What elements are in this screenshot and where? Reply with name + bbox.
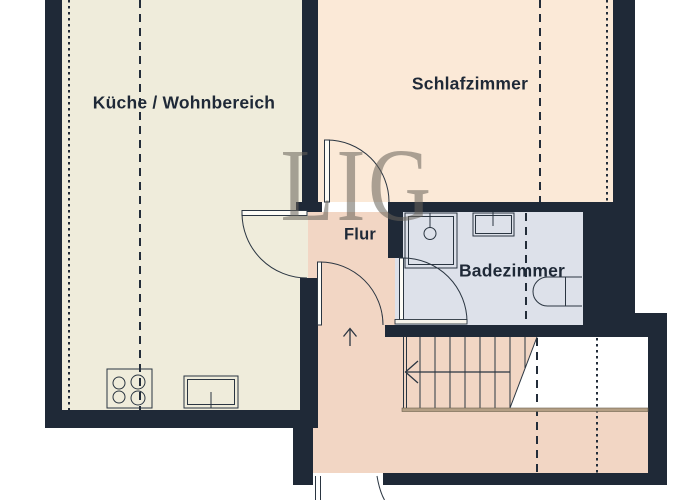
wall-right-step bbox=[635, 313, 667, 327]
wall-right-lower bbox=[648, 337, 667, 485]
kitchen-floor bbox=[62, 0, 302, 410]
watermark-logo: LIG bbox=[280, 134, 433, 238]
wall-kitchen-right-lower bbox=[300, 278, 318, 412]
wall-bottom bbox=[383, 473, 667, 485]
bedroom-label: Schlafzimmer bbox=[412, 74, 528, 95]
bathroom-label: Badezimmer bbox=[459, 261, 565, 282]
wall-kitchen-bottom bbox=[45, 410, 318, 428]
kitchen-label: Küche / Wohnbereich bbox=[93, 93, 275, 114]
wall-left bbox=[45, 0, 62, 428]
wall-below-bathroom bbox=[385, 325, 667, 337]
floor-plan: Küche / Wohnbereich Schlafzimmer Flur Ba… bbox=[0, 0, 693, 500]
wall-bedroom-right bbox=[613, 0, 635, 212]
wall-bathroom-right bbox=[583, 212, 635, 325]
stairs-floor bbox=[403, 337, 648, 473]
bottom-exit-door bbox=[316, 476, 385, 500]
wall-hallway-left-lower bbox=[293, 428, 313, 485]
